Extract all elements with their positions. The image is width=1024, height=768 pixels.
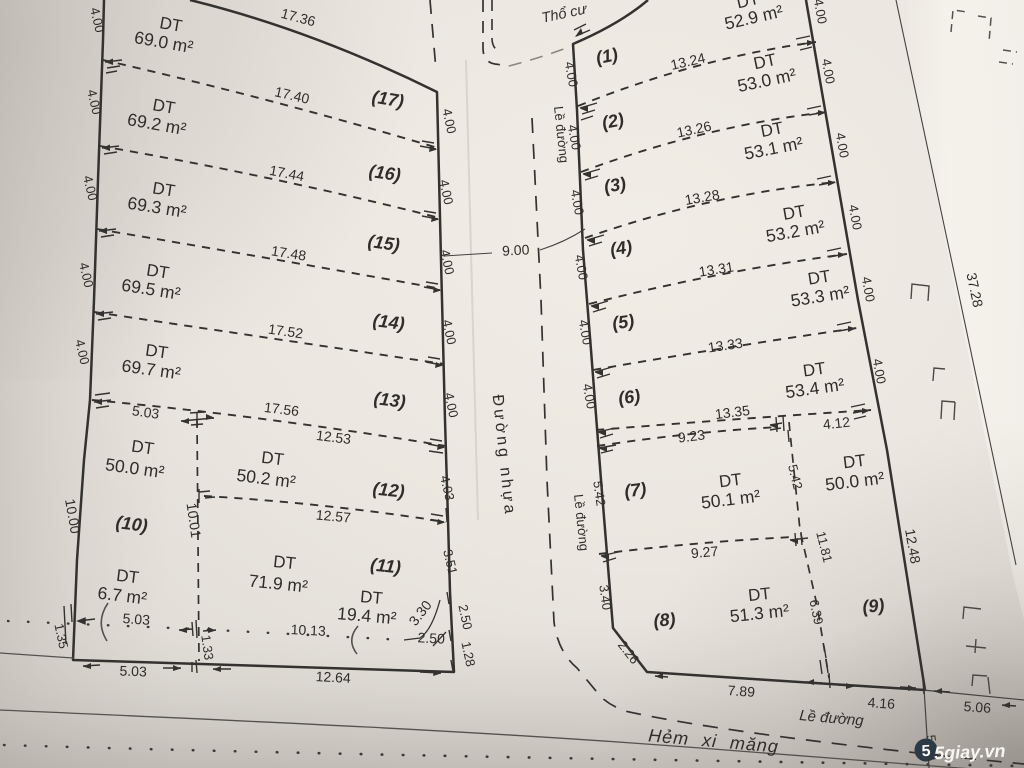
svg-text:9.23: 9.23 <box>677 426 706 445</box>
svg-text:9.27: 9.27 <box>690 543 719 561</box>
svg-text:4.12: 4.12 <box>822 414 851 433</box>
svg-text:(5): (5) <box>611 311 636 334</box>
svg-text:(7): (7) <box>623 479 647 502</box>
svg-text:4.16: 4.16 <box>867 694 896 712</box>
svg-text:(11): (11) <box>369 554 402 577</box>
svg-text:9.00: 9.00 <box>502 241 530 258</box>
svg-text:5.03: 5.03 <box>119 663 147 680</box>
svg-text:(13): (13) <box>373 388 407 412</box>
svg-text:12.57: 12.57 <box>315 507 352 526</box>
svg-text:5.06: 5.06 <box>963 698 992 716</box>
svg-text:(14): (14) <box>372 310 406 334</box>
svg-text:2.50: 2.50 <box>417 629 445 646</box>
svg-text:(9): (9) <box>861 595 885 617</box>
svg-text:(4): (4) <box>609 236 634 259</box>
svg-text:5giay.vn: 5giay.vn <box>934 741 1006 763</box>
svg-text:7.89: 7.89 <box>727 682 756 700</box>
svg-text:(3): (3) <box>602 173 627 197</box>
svg-text:(10): (10) <box>115 512 149 536</box>
svg-text:DT: DT <box>260 448 285 470</box>
svg-text:DT: DT <box>272 552 297 573</box>
svg-text:(12): (12) <box>372 478 406 501</box>
svg-text:10.13: 10.13 <box>290 621 326 639</box>
svg-text:DT: DT <box>130 437 155 459</box>
svg-text:(1): (1) <box>594 44 619 68</box>
svg-text:(8): (8) <box>653 609 677 631</box>
svg-text:5: 5 <box>921 743 931 760</box>
svg-text:5.03: 5.03 <box>122 610 151 628</box>
svg-text:(2): (2) <box>600 109 625 133</box>
svg-text:(6): (6) <box>617 386 642 409</box>
svg-text:12.64: 12.64 <box>315 668 351 686</box>
